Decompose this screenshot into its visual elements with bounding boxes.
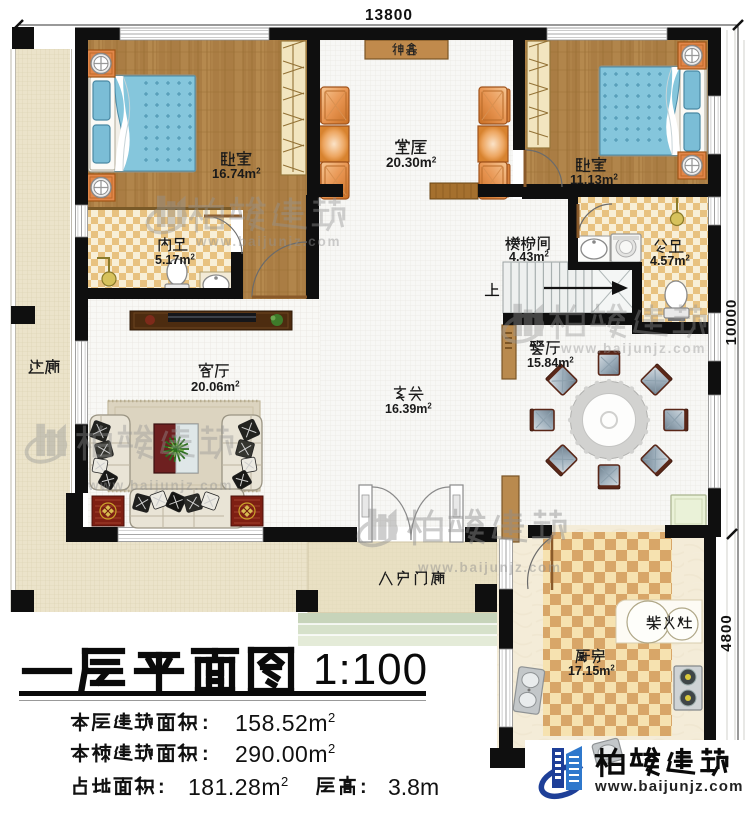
svg-text:15.84m2: 15.84m2 bbox=[527, 356, 574, 370]
svg-text:www.baijunjz.com: www.baijunjz.com bbox=[594, 778, 744, 795]
svg-text:17.15m2: 17.15m2 bbox=[568, 664, 615, 678]
svg-text:20.06m2: 20.06m2 bbox=[191, 379, 240, 394]
svg-text:20.30m2: 20.30m2 bbox=[386, 154, 437, 170]
svg-text::: : bbox=[158, 776, 165, 798]
svg-text:www.baijunjz.com: www.baijunjz.com bbox=[560, 341, 706, 356]
svg-text:10000: 10000 bbox=[723, 299, 740, 346]
svg-text:16.39m2: 16.39m2 bbox=[385, 402, 432, 416]
svg-text:4800: 4800 bbox=[718, 614, 735, 651]
svg-text:11.13m2: 11.13m2 bbox=[570, 172, 618, 187]
svg-text::: : bbox=[202, 743, 209, 765]
svg-text:158.52m2: 158.52m2 bbox=[235, 710, 336, 736]
svg-text:4.57m2: 4.57m2 bbox=[650, 254, 690, 268]
svg-text:13800: 13800 bbox=[365, 7, 413, 24]
svg-text:4.43m2: 4.43m2 bbox=[509, 250, 549, 264]
svg-text:www.baijunjz.com: www.baijunjz.com bbox=[195, 234, 341, 249]
svg-text:www.baijunjz.com: www.baijunjz.com bbox=[87, 478, 233, 493]
svg-text:3.8m: 3.8m bbox=[388, 774, 439, 800]
svg-text::: : bbox=[360, 776, 367, 798]
svg-text:5.17m2: 5.17m2 bbox=[155, 253, 195, 267]
svg-text:1:100: 1:100 bbox=[313, 645, 428, 694]
svg-text:290.00m2: 290.00m2 bbox=[235, 741, 336, 767]
svg-text:16.74m2: 16.74m2 bbox=[212, 166, 261, 181]
svg-text::: : bbox=[202, 712, 209, 734]
svg-text:181.28m2: 181.28m2 bbox=[188, 774, 289, 800]
